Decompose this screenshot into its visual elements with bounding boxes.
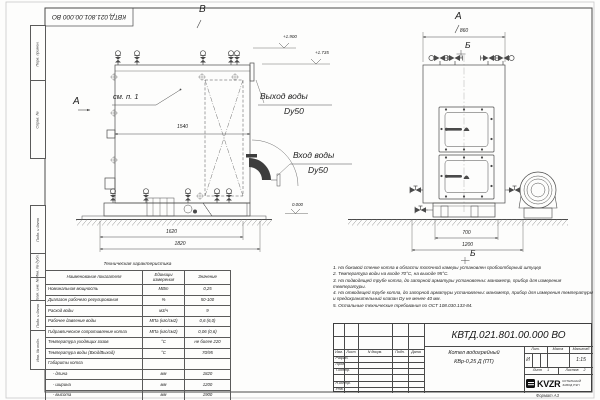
dim-860: 860	[423, 29, 505, 34]
product-name: Котел водогрейный КВр-0,25 Д (ПТ)	[426, 349, 522, 389]
tb-col-data: Дата	[408, 349, 424, 356]
frame-col-podp-data-2: Подп. и дата	[30, 300, 46, 332]
boiler-side-view	[348, 25, 568, 264]
note-2: 2. Температура воды на входе 70°С, на вы…	[333, 271, 593, 277]
tb-col-podp: Подп.	[392, 349, 408, 356]
frame-col-inv-podl: Инв. № подл.	[30, 330, 46, 370]
tb-mass-header: Масса	[547, 346, 569, 353]
tb-sheet: Лист 1	[524, 367, 558, 374]
outlet-label: Выход воды	[260, 92, 308, 101]
sheets-word: Листов	[565, 369, 578, 373]
tech-characteristics: Техническая характеристика Наименование …	[45, 262, 230, 400]
tb-role-tkontr: Т.контр.	[334, 368, 360, 374]
sheets-num: 2	[584, 369, 586, 373]
tb-col-list: Лист	[344, 349, 358, 356]
doc-number: КВТД.021.801.00.000 ВО	[424, 324, 593, 346]
company-name: КОТЕЛЬНЫЙ ЗАВОД РЭП	[562, 380, 581, 387]
view-label-a-side: А	[455, 12, 462, 22]
sheet-word: Лист	[533, 369, 542, 373]
callout-see-item-1: см. п. 1	[113, 93, 139, 101]
elevation-1735: +1.735	[315, 51, 329, 56]
note-4: 4. На отводящей трубе котла, до запорной…	[333, 290, 593, 302]
boiler-front-view	[76, 20, 352, 252]
tech-col-value: Значение	[185, 271, 231, 285]
table-row: Температура воды (Вход/Выход)°С70/95	[46, 348, 231, 359]
section-label-b-top: Б	[465, 41, 471, 50]
elevation-zero: 0.000	[292, 203, 303, 207]
tech-table-title: Техническая характеристика	[45, 262, 230, 270]
note-3: 3. На подводящей трубе котла, до запорно…	[333, 278, 593, 290]
dim-1200: 1200	[412, 243, 523, 248]
section-label-a-front: А	[73, 97, 80, 107]
inlet-label: Вход воды	[293, 151, 334, 160]
outlet-dn-label: Dy50	[284, 107, 304, 116]
tb-lit-header: Лит.	[524, 346, 547, 353]
format-label: Формат А3	[536, 393, 559, 398]
frame-col-sprav: Справ. №	[30, 80, 46, 159]
product-name-line1: Котел водогрейный	[448, 350, 499, 356]
tb-col-dokum: N докум.	[358, 349, 392, 356]
inlet-elbow	[249, 158, 271, 180]
tb-role-utv: Утв.	[334, 387, 360, 393]
inlet-dn-label: Dy50	[308, 166, 328, 175]
tb-lit-value: И	[524, 353, 532, 367]
outlet-flange	[250, 63, 254, 81]
table-row: Температура уходящих газов°Сне более 220	[46, 337, 231, 348]
table-row: Номинальная мощностьМВт0,25	[46, 285, 231, 296]
frame-col-podp-data-1: Подп. и дата	[30, 205, 46, 255]
top-stamp-text: КВТД.021.801.00.000 ВО	[45, 8, 133, 26]
title-block: Изм. Лист N докум. Подп. Дата Разраб. Пр…	[333, 323, 592, 392]
dim-1820: 1820	[100, 242, 260, 247]
company-logo: KVZR КОТЕЛЬНЫЙ ЗАВОД РЭП	[526, 375, 592, 392]
kvzr-logo-text: KVZR	[537, 379, 560, 389]
drawing-sheet: КВТД.021.801.00.000 ВО Перв. примен. Спр…	[0, 0, 600, 400]
note-1: 1. На боковой стенке котла в области топ…	[333, 265, 593, 271]
table-row: - ширинамм1200	[46, 380, 231, 391]
view-label-v: В	[199, 5, 206, 15]
table-row: - высотамм1900	[46, 390, 231, 400]
blower-fan	[519, 172, 557, 218]
table-row: Расход водым3/ч9	[46, 306, 231, 317]
technical-notes: 1. На боковой стенке котла в области топ…	[333, 265, 593, 309]
elevation-1900: +1.900	[283, 35, 297, 40]
table-row: Габариты котла	[46, 359, 231, 370]
company-name-line2: ЗАВОД РЭП	[562, 384, 581, 388]
ground-hatch-left	[76, 220, 272, 226]
tb-sheets: Листов 2	[558, 367, 593, 374]
dim-1540: 1540	[115, 125, 250, 130]
sheet-num: 1	[547, 369, 549, 373]
ground-hatch-right	[348, 220, 568, 226]
tech-col-units: Единицы измерения	[143, 271, 185, 285]
frame-col-inv-dubl: Инв. № дубл.	[30, 253, 46, 279]
tb-scale-header: Масштаб	[569, 346, 593, 353]
product-name-line2: КВр-0,25 Д (ПТ)	[454, 359, 494, 365]
kvzr-logo-icon	[526, 379, 535, 388]
tech-col-name: Наименование показателя	[46, 271, 143, 285]
upper-door	[439, 107, 494, 152]
table-row: Рабочее давление водыМПа (кгс/см2)0,6 (6…	[46, 316, 231, 327]
table-row: Гидравлическое сопротивление котлаМПа (к…	[46, 327, 231, 338]
tech-table: Наименование показателя Единицы измерени…	[45, 270, 231, 400]
note-5: 5. Остальные технические требования по О…	[333, 303, 593, 309]
tb-scale-value: 1:15	[569, 353, 593, 367]
tb-col-izm: Изм.	[334, 349, 344, 356]
table-row: - длинамм1820	[46, 369, 231, 380]
dim-700: 700	[435, 231, 498, 236]
lower-door	[439, 155, 494, 199]
section-label-b-bottom: Б	[470, 249, 476, 258]
dim-1620: 1620	[100, 230, 243, 235]
table-row: Диапазон рабочего регулирования%50-100	[46, 295, 231, 306]
frame-col-vzam-inv: Взам. инв. №	[30, 277, 46, 302]
frame-col-perv-primen: Перв. примен.	[30, 25, 46, 82]
